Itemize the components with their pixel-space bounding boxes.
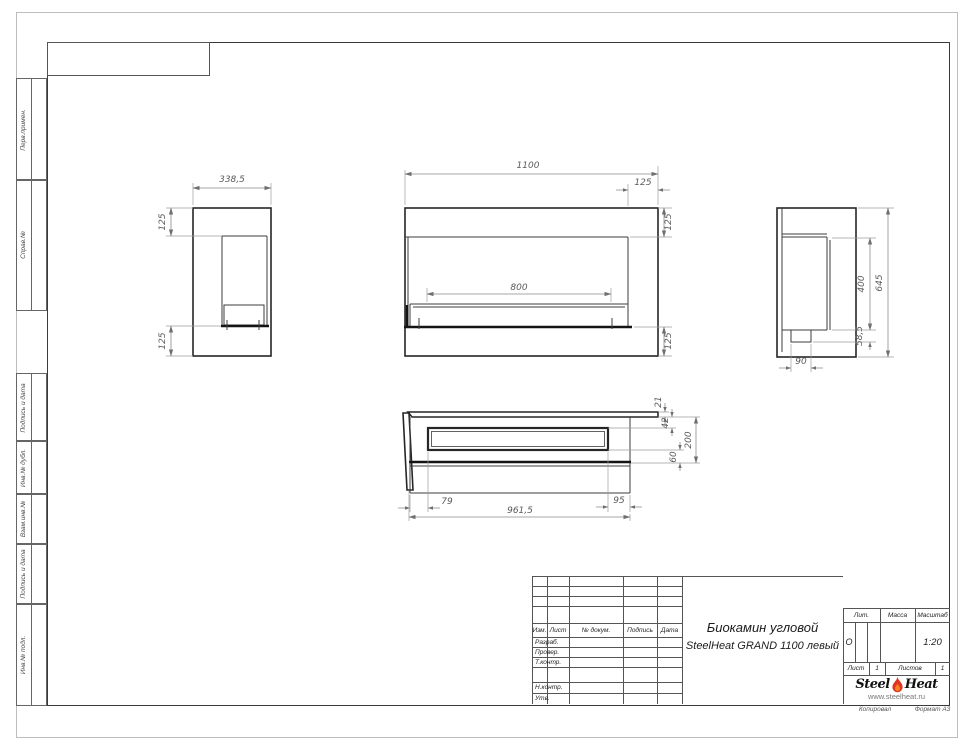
dim-top-glass: 21: [654, 396, 664, 407]
dim-side-opening: 400: [857, 275, 867, 292]
footer-format: Формат А3: [905, 706, 960, 713]
dim-top-inset: 42: [661, 417, 671, 429]
tb-col-list: Лист: [547, 623, 569, 637]
logo-url: www.steelheat.ru: [843, 693, 950, 701]
tb-row-approved: Утв.: [532, 693, 572, 704]
dim-top-left: 79: [441, 497, 453, 507]
footer-copied-by: Копировал: [845, 706, 905, 713]
logo-heat-text: Heat: [905, 677, 938, 692]
dim-front-bottom: 125: [664, 332, 674, 349]
tb-scale-value: 1:20: [915, 622, 950, 662]
document-title: Биокамин угловой: [682, 620, 843, 635]
tb-col-docnum: № докум.: [569, 623, 623, 637]
dim-front-width: 1100: [517, 161, 540, 171]
document-subtitle: SteelHeat GRAND 1100 левый: [682, 640, 843, 652]
tb-row-checked: Провер.: [532, 647, 572, 657]
dim-left-bottom: 125: [158, 332, 168, 349]
tb-col-signature: Подпись: [623, 623, 657, 637]
dim-top-slot: 60: [669, 451, 679, 463]
dim-left-width: 338,5: [219, 175, 245, 185]
dim-side-bottom: 58,5: [855, 326, 865, 346]
front-view: 1100 125 125 125 800: [404, 161, 674, 356]
flame-icon: [891, 677, 904, 693]
tb-sheets-label: Листов: [885, 662, 935, 675]
tb-col-date: Дата: [657, 623, 682, 637]
top-view: 21 42 60 200 79 95: [398, 396, 700, 521]
tb-row-developed: Разраб.: [532, 637, 572, 647]
dim-side-foot: 90: [795, 357, 807, 367]
tb-sheet-value: 1: [869, 662, 885, 675]
tb-lit-value: О: [843, 622, 855, 662]
tb-col-izm: Изм.: [532, 623, 547, 637]
side-view: 400 58,5 645 90: [777, 208, 894, 372]
drawing-sheet: Перв.примен. Справ.№ Подпись и дата Инв.…: [0, 0, 970, 749]
tb-row-ncontrol: Н.контр.: [532, 682, 572, 693]
title-block: Изм. Лист № докум. Подпись Дата Разраб. …: [532, 576, 950, 704]
left-glass-view: 338,5 125 125: [158, 0, 408, 356]
tb-lit-label: Лит.: [843, 608, 880, 622]
dim-front-top: 125: [664, 213, 674, 230]
dim-side-height: 645: [875, 274, 885, 291]
tb-row-tcontrol: Т.контр.: [532, 657, 572, 667]
tb-scale-label: Масштаб: [915, 608, 950, 622]
dim-front-right: 125: [634, 178, 651, 188]
steelheat-logo: Steel Heat www.steelheat.ru: [843, 675, 950, 704]
tb-mass-label: Масса: [880, 608, 915, 622]
tb-sheet-label: Лист: [843, 662, 869, 675]
dim-top-front: 961,5: [507, 506, 533, 516]
dim-top-right: 95: [613, 496, 625, 506]
dim-left-top: 125: [158, 213, 168, 230]
logo-steel-text: Steel: [855, 677, 889, 692]
tb-sheets-value: 1: [935, 662, 950, 675]
dim-top-depth: 200: [684, 431, 694, 448]
dim-front-burner: 800: [510, 283, 527, 293]
